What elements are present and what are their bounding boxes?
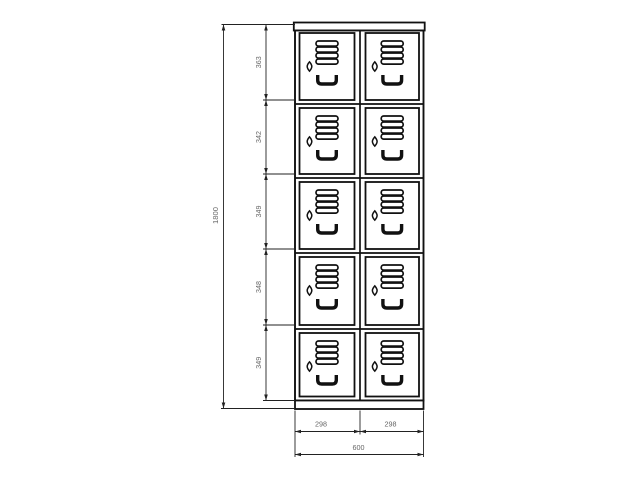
svg-text:1800: 1800 <box>211 207 220 224</box>
svg-text:298: 298 <box>385 420 397 429</box>
svg-text:600: 600 <box>353 443 365 452</box>
svg-text:349: 349 <box>254 357 263 369</box>
svg-text:348: 348 <box>254 281 263 293</box>
svg-text:349: 349 <box>254 206 263 218</box>
svg-text:363: 363 <box>254 56 263 68</box>
svg-text:298: 298 <box>315 420 327 429</box>
svg-text:342: 342 <box>254 131 263 143</box>
